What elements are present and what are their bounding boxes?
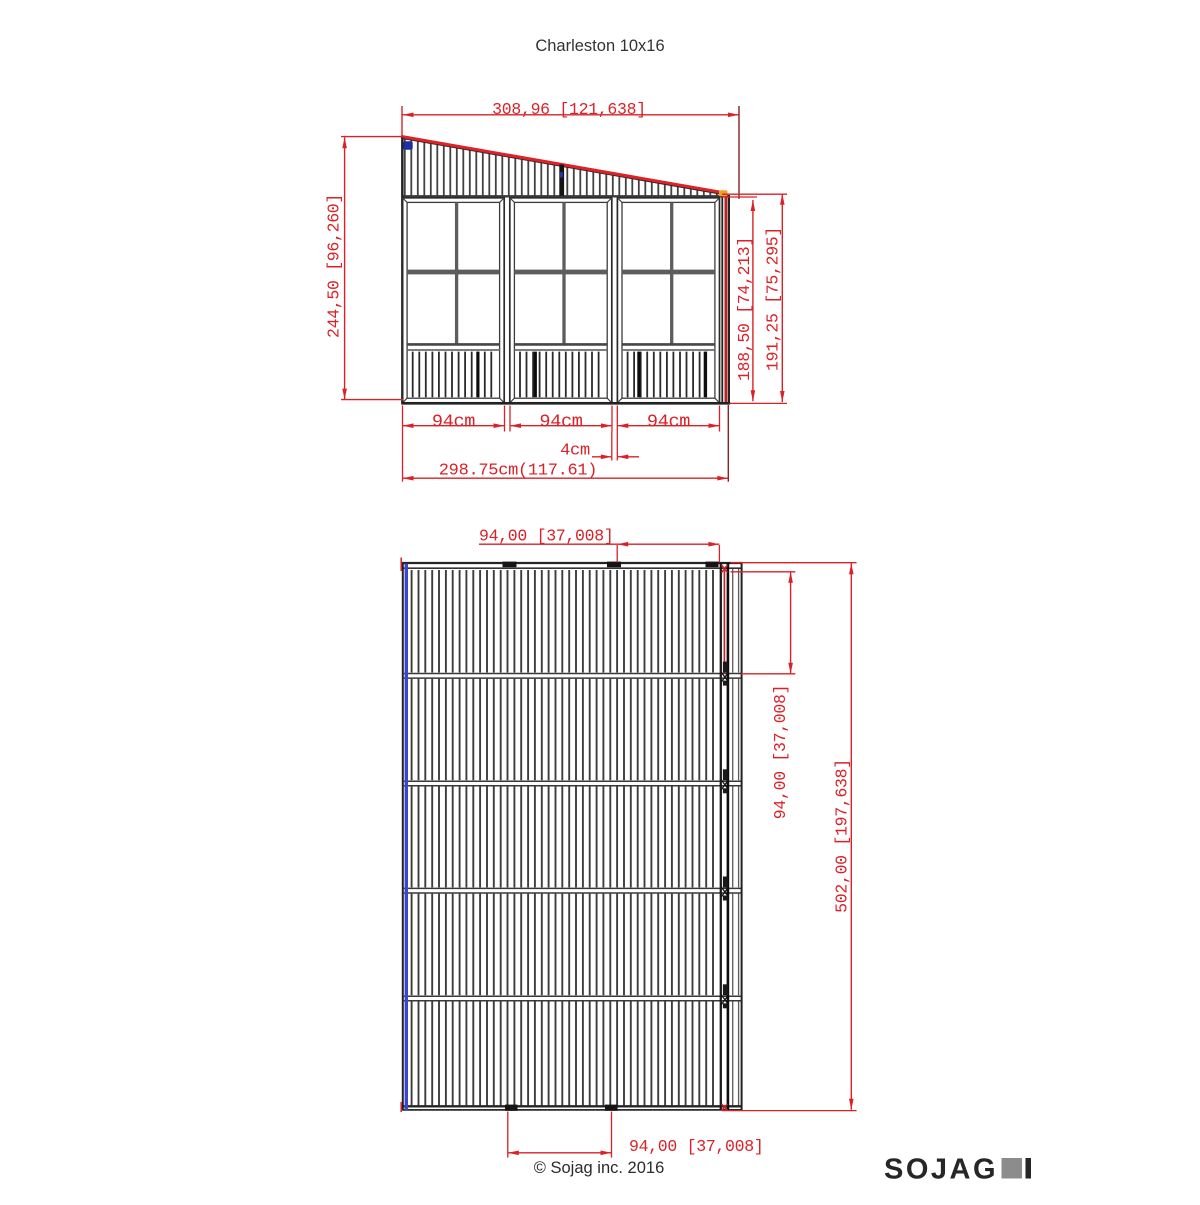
svg-text:244,50 [96,260]: 244,50 [96,260] — [325, 194, 344, 338]
svg-text:94,00 [37,008]: 94,00 [37,008] — [771, 685, 790, 819]
svg-text:SOJAG: SOJAG — [884, 1154, 998, 1186]
svg-text:94cm: 94cm — [647, 411, 690, 432]
svg-text:© Sojag inc. 2016: © Sojag inc. 2016 — [534, 1159, 665, 1177]
svg-text:502,00 [197,638]: 502,00 [197,638] — [833, 759, 852, 913]
svg-text:94cm: 94cm — [539, 411, 582, 432]
svg-text:298.75cm(117.61): 298.75cm(117.61) — [439, 461, 597, 480]
svg-text:4cm: 4cm — [560, 442, 590, 461]
svg-text:Charleston 10x16: Charleston 10x16 — [535, 37, 664, 55]
svg-text:188,50 [74,213]: 188,50 [74,213] — [735, 237, 754, 381]
svg-text:308,96 [121,638]: 308,96 [121,638] — [492, 100, 646, 119]
svg-text:94,00 [37,008]: 94,00 [37,008] — [479, 527, 613, 546]
svg-text:191,25 [75,295]: 191,25 [75,295] — [764, 227, 783, 371]
svg-text:94cm: 94cm — [432, 411, 475, 432]
svg-text:94,00 [37,008]: 94,00 [37,008] — [629, 1137, 763, 1156]
